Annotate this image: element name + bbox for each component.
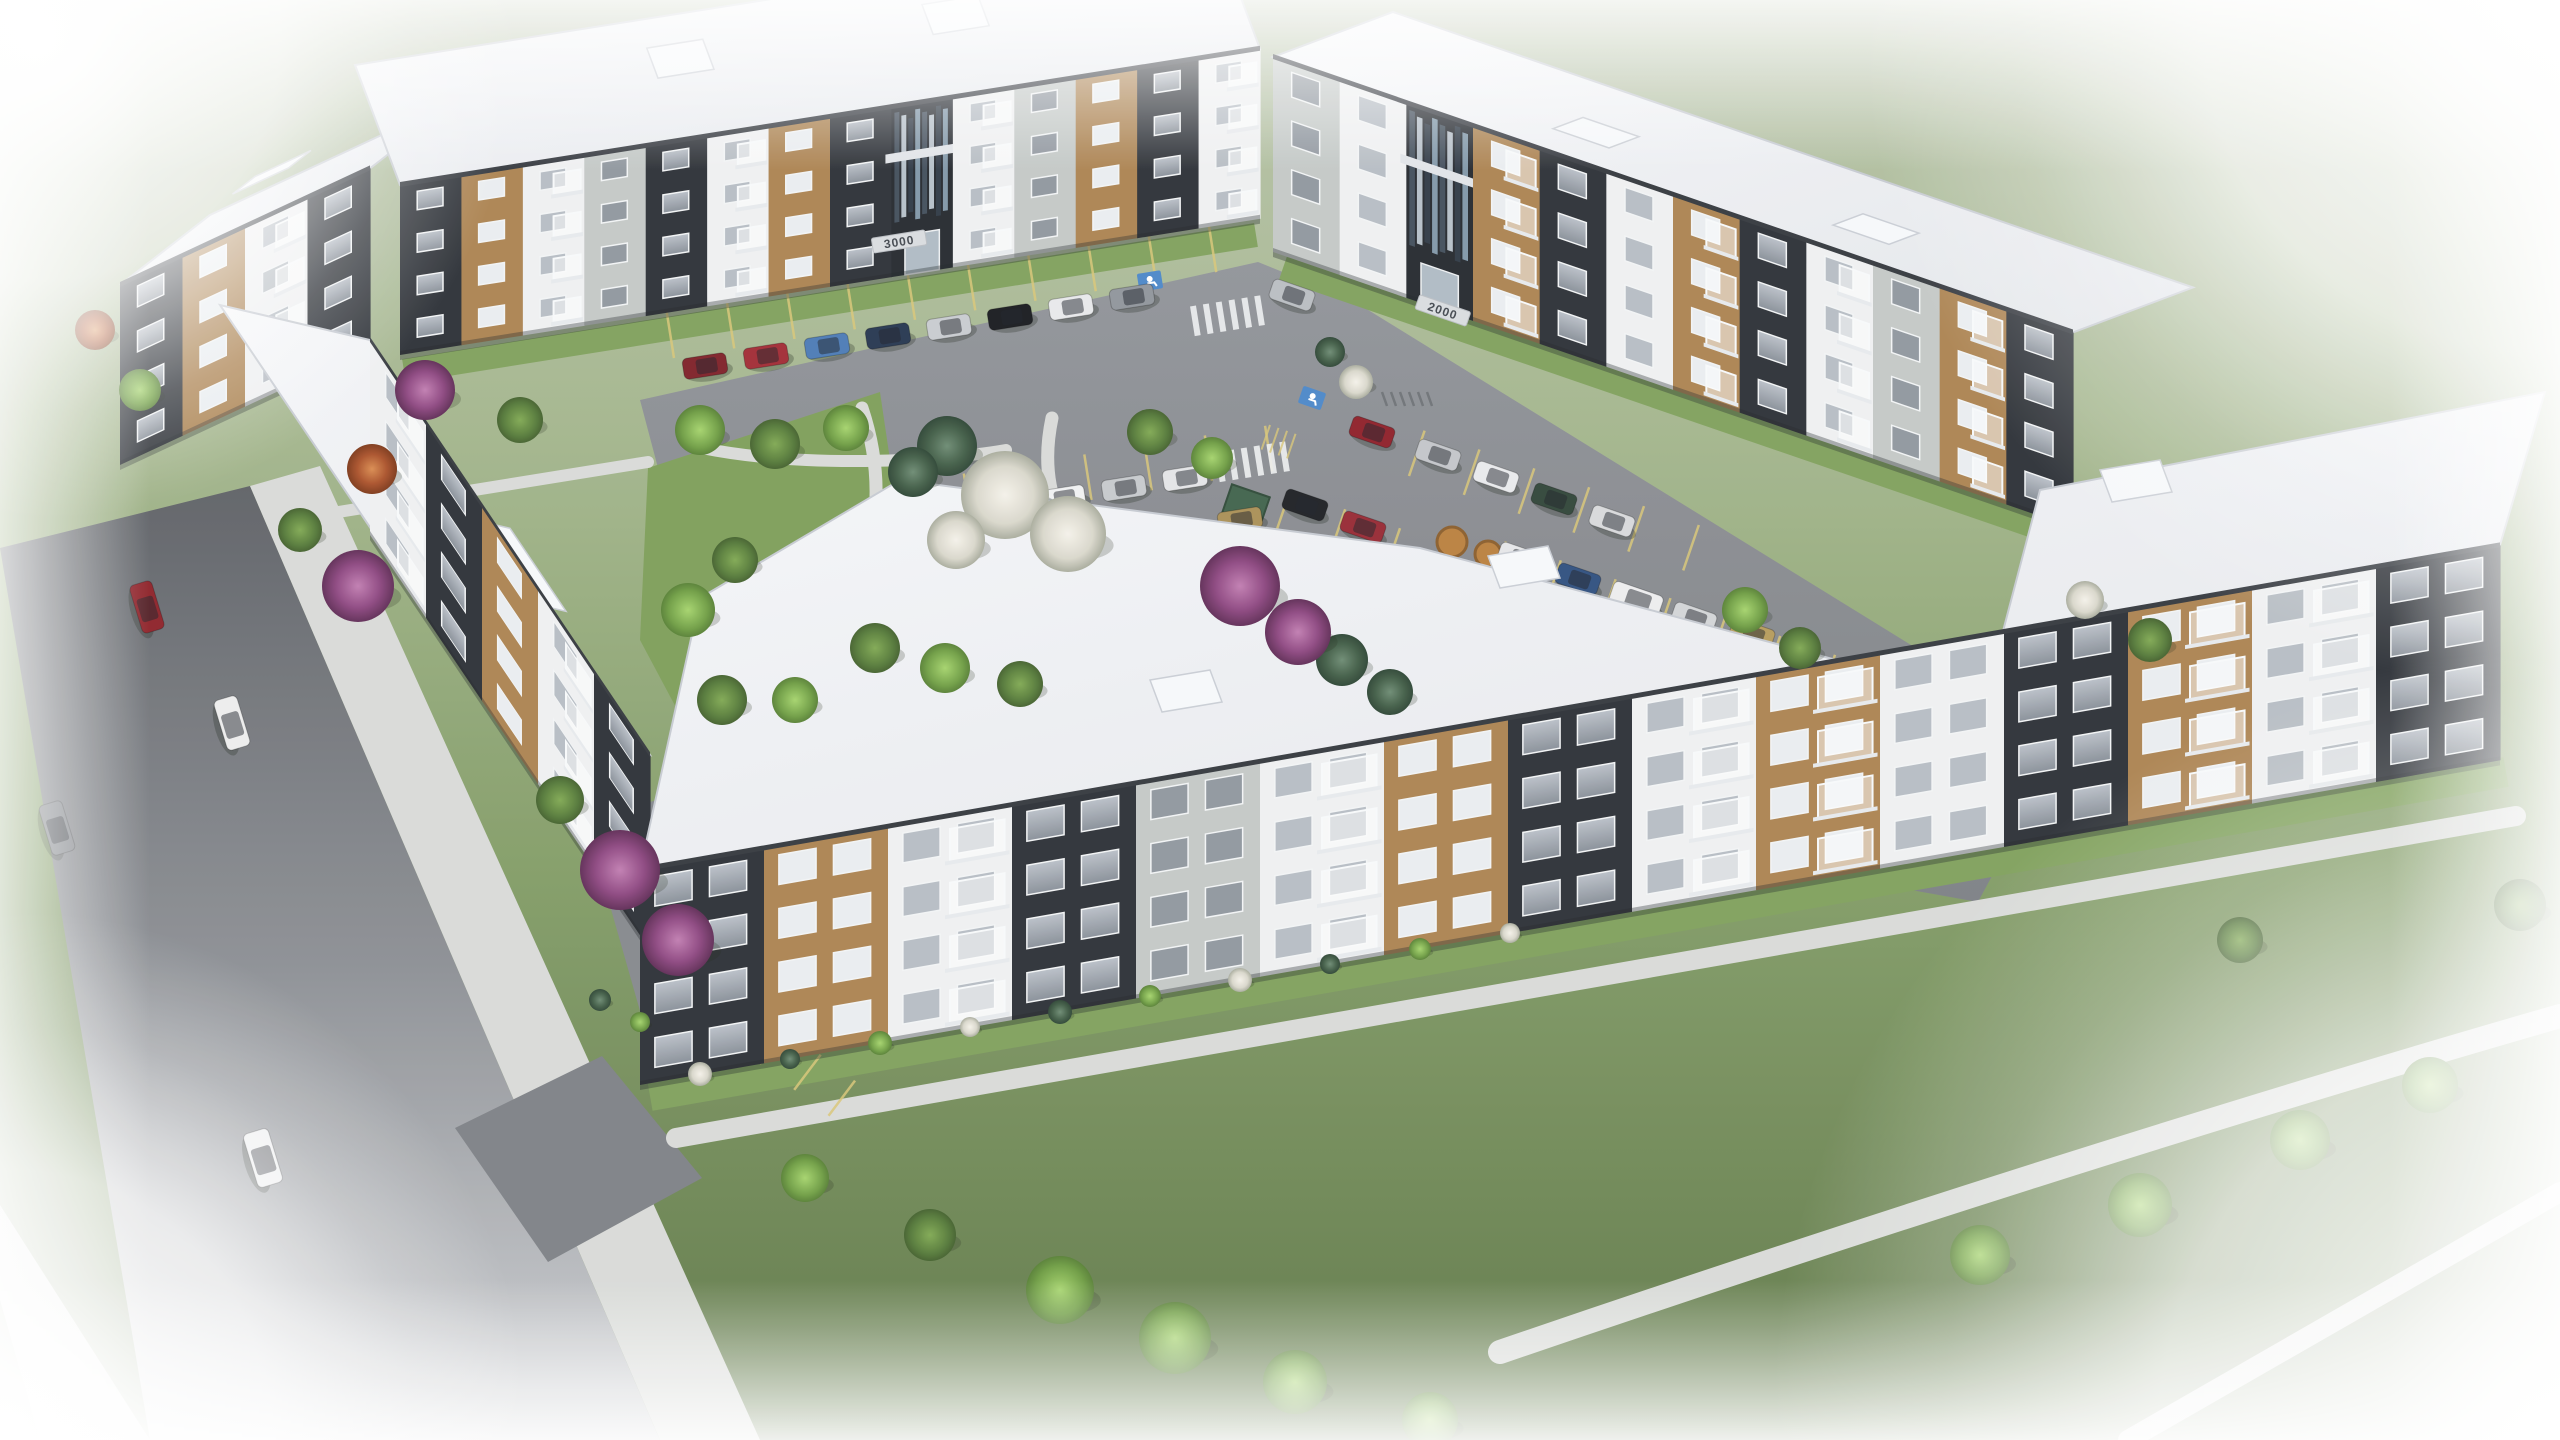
white-haze-vignette: [0, 0, 2560, 1440]
rendering-canvas: 3000 2000: [0, 0, 2560, 1440]
